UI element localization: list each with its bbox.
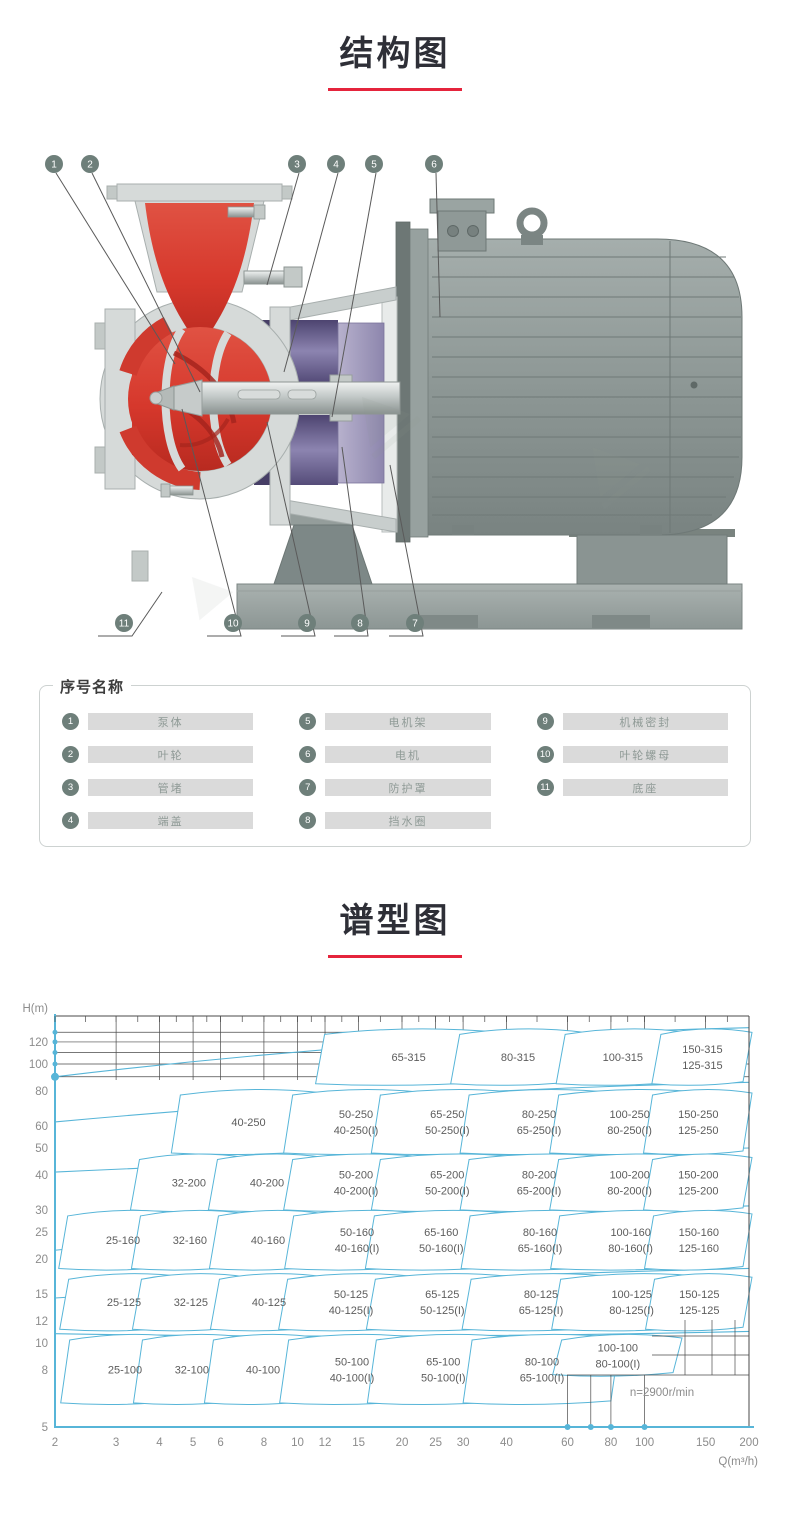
svg-text:50: 50 — [35, 1143, 48, 1155]
type-spectrum-chart: 65-31580-315100-315150-315125-31540-2505… — [0, 984, 790, 1489]
svg-text:4: 4 — [156, 1437, 163, 1449]
svg-text:20: 20 — [396, 1437, 409, 1449]
svg-text:150-160: 150-160 — [679, 1227, 719, 1239]
svg-text:60: 60 — [35, 1121, 48, 1133]
svg-text:40-125: 40-125 — [252, 1297, 286, 1309]
parts-legend-panel: 序号名称 1泵体2叶轮3管堵4端盖5电机架6电机7防护罩8挡水圈9机械密封10叶… — [39, 685, 751, 847]
svg-text:65-250: 65-250 — [430, 1109, 464, 1121]
svg-text:100-100: 100-100 — [598, 1342, 638, 1354]
pump-region-150-250 — [644, 1089, 752, 1154]
svg-text:40-160: 40-160 — [251, 1235, 285, 1247]
svg-text:25-100: 25-100 — [108, 1364, 142, 1376]
svg-text:100: 100 — [635, 1437, 654, 1449]
svg-text:Q(m³/h): Q(m³/h) — [718, 1456, 758, 1468]
svg-text:50-160: 50-160 — [340, 1227, 374, 1239]
part-number-badge: 6 — [299, 746, 316, 763]
svg-text:100: 100 — [29, 1059, 48, 1071]
svg-text:15: 15 — [35, 1289, 48, 1301]
svg-text:32-160: 32-160 — [173, 1235, 207, 1247]
svg-text:125-250: 125-250 — [678, 1125, 718, 1137]
svg-text:32-125: 32-125 — [174, 1297, 208, 1309]
part-number-badge: 2 — [62, 746, 79, 763]
svg-text:200: 200 — [739, 1437, 758, 1449]
svg-text:150-125: 150-125 — [679, 1289, 719, 1301]
svg-text:50-200: 50-200 — [339, 1170, 373, 1182]
svg-text:80-160: 80-160 — [523, 1227, 557, 1239]
svg-text:80-125: 80-125 — [524, 1289, 558, 1301]
svg-text:H(m): H(m) — [22, 1003, 48, 1015]
pump-region-150-315 — [652, 1029, 752, 1085]
part-name-label: 防护罩 — [325, 779, 490, 796]
callout-number: 11 — [119, 619, 130, 630]
part-number-badge: 7 — [299, 779, 316, 796]
part-number-badge: 11 — [537, 779, 554, 796]
svg-text:120: 120 — [29, 1037, 48, 1049]
part-name-label: 电机架 — [325, 713, 490, 730]
svg-text:32-200: 32-200 — [172, 1178, 206, 1190]
part-item-8: 8挡水圈 — [299, 812, 490, 829]
part-name-label: 管堵 — [88, 779, 253, 796]
svg-text:65-200(I): 65-200(I) — [517, 1186, 562, 1198]
pump-region-150-160 — [645, 1210, 752, 1270]
svg-text:25-125: 25-125 — [107, 1297, 141, 1309]
svg-text:10: 10 — [291, 1437, 304, 1449]
callout-number: 7 — [412, 619, 418, 630]
svg-text:25-160: 25-160 — [106, 1235, 140, 1247]
svg-text:12: 12 — [35, 1316, 48, 1328]
svg-text:150: 150 — [696, 1437, 715, 1449]
svg-text:n=2900r/min: n=2900r/min — [630, 1387, 694, 1399]
part-item-9: 9机械密封 — [537, 713, 728, 730]
svg-text:50-200(I): 50-200(I) — [425, 1186, 470, 1198]
svg-text:100-200: 100-200 — [609, 1170, 649, 1182]
callout-number: 4 — [333, 160, 339, 171]
svg-text:100-315: 100-315 — [603, 1052, 643, 1064]
part-name-label: 泵体 — [88, 713, 253, 730]
part-item-1: 1泵体 — [62, 713, 253, 730]
svg-text:60: 60 — [561, 1437, 574, 1449]
svg-text:40: 40 — [35, 1170, 48, 1182]
svg-text:30: 30 — [35, 1205, 48, 1217]
svg-text:5: 5 — [42, 1422, 48, 1434]
svg-text:10: 10 — [35, 1338, 48, 1350]
part-name-label: 底座 — [563, 779, 728, 796]
svg-text:2: 2 — [52, 1437, 58, 1449]
part-name-label: 叶轮 — [88, 746, 253, 763]
svg-text:50-250: 50-250 — [339, 1109, 373, 1121]
svg-text:125-200: 125-200 — [678, 1186, 718, 1198]
svg-text:80-160(I): 80-160(I) — [608, 1243, 653, 1255]
motor-flange — [396, 222, 428, 542]
part-name-label: 叶轮螺母 — [563, 746, 728, 763]
svg-text:15: 15 — [352, 1437, 365, 1449]
part-name-label: 电机 — [325, 746, 490, 763]
svg-text:50-125(I): 50-125(I) — [420, 1305, 465, 1317]
part-name-label: 机械密封 — [563, 713, 728, 730]
callout-number: 1 — [51, 160, 57, 171]
part-item-3: 3管堵 — [62, 779, 253, 796]
pump-cross-section: 1234561110987 — [32, 147, 758, 659]
svg-text:125-125: 125-125 — [679, 1305, 719, 1317]
svg-text:80-315: 80-315 — [501, 1052, 535, 1064]
svg-text:80: 80 — [605, 1437, 618, 1449]
chart-speed-annotation: n=2900r/min — [630, 1387, 694, 1399]
svg-text:80-125(I): 80-125(I) — [609, 1305, 654, 1317]
svg-text:65-200: 65-200 — [430, 1170, 464, 1182]
part-number-badge: 3 — [62, 779, 79, 796]
part-item-2: 2叶轮 — [62, 746, 253, 763]
callout-number: 10 — [227, 619, 239, 630]
structure-title: 结构图 — [0, 26, 790, 75]
svg-text:40-100(I): 40-100(I) — [330, 1372, 375, 1384]
svg-text:32-100: 32-100 — [175, 1364, 209, 1376]
svg-text:150-315: 150-315 — [682, 1044, 722, 1056]
callout-3: 3 — [267, 155, 306, 285]
svg-text:80-250: 80-250 — [522, 1109, 556, 1121]
motor-body — [427, 239, 742, 535]
svg-text:50-125: 50-125 — [334, 1289, 368, 1301]
spectrum-section-header: 谱型图 — [0, 893, 790, 958]
structure-section-header: 结构图 — [0, 0, 790, 91]
svg-text:40-200(I): 40-200(I) — [334, 1186, 379, 1198]
svg-text:40: 40 — [500, 1437, 513, 1449]
svg-text:5: 5 — [190, 1437, 196, 1449]
part-number-badge: 4 — [62, 812, 79, 829]
svg-text:80-200(I): 80-200(I) — [607, 1186, 652, 1198]
svg-text:80: 80 — [35, 1086, 48, 1098]
part-number-badge: 1 — [62, 713, 79, 730]
part-item-10: 10叶轮螺母 — [537, 746, 728, 763]
svg-text:65-100(I): 65-100(I) — [520, 1372, 565, 1384]
part-number-badge: 5 — [299, 713, 316, 730]
svg-text:150-200: 150-200 — [678, 1170, 718, 1182]
part-item-11: 11底座 — [537, 779, 728, 796]
callout-number: 5 — [371, 160, 377, 171]
svg-text:50-160(I): 50-160(I) — [419, 1243, 464, 1255]
callout-11: 11 — [98, 592, 162, 636]
chart-top-ticks — [55, 1016, 749, 1022]
svg-text:30: 30 — [457, 1437, 470, 1449]
svg-text:12: 12 — [319, 1437, 332, 1449]
svg-text:65-160: 65-160 — [424, 1227, 458, 1239]
pump-region-150-200 — [644, 1154, 752, 1212]
part-item-7: 7防护罩 — [299, 779, 490, 796]
svg-text:150-250: 150-250 — [678, 1109, 718, 1121]
structure-title-underline — [328, 88, 462, 91]
svg-text:6: 6 — [217, 1437, 223, 1449]
svg-text:40-200: 40-200 — [250, 1178, 284, 1190]
pump-region-150-125 — [646, 1274, 752, 1331]
svg-text:40-250(I): 40-250(I) — [334, 1125, 379, 1137]
svg-text:50-100(I): 50-100(I) — [421, 1372, 466, 1384]
motor-foot — [569, 529, 735, 584]
svg-text:65-160(I): 65-160(I) — [518, 1243, 563, 1255]
svg-text:65-250(I): 65-250(I) — [517, 1125, 562, 1137]
callout-number: 9 — [304, 619, 310, 630]
svg-text:3: 3 — [113, 1437, 119, 1449]
svg-text:50-250(I): 50-250(I) — [425, 1125, 470, 1137]
part-item-5: 5电机架 — [299, 713, 490, 730]
part-name-label: 挡水圈 — [325, 812, 490, 829]
svg-text:65-100: 65-100 — [426, 1356, 460, 1368]
part-number-badge: 9 — [537, 713, 554, 730]
callout-number: 2 — [87, 160, 93, 171]
svg-text:25: 25 — [35, 1227, 48, 1239]
svg-text:40-160(I): 40-160(I) — [335, 1243, 380, 1255]
spectrum-title-underline — [328, 955, 462, 958]
part-item-6: 6电机 — [299, 746, 490, 763]
svg-text:20: 20 — [35, 1254, 48, 1266]
svg-text:65-125(I): 65-125(I) — [519, 1305, 564, 1317]
svg-text:40-250: 40-250 — [231, 1117, 265, 1129]
svg-text:80-250(I): 80-250(I) — [607, 1125, 652, 1137]
parts-grid: 1泵体2叶轮3管堵4端盖5电机架6电机7防护罩8挡水圈9机械密封10叶轮螺母11… — [62, 713, 728, 829]
svg-text:125-315: 125-315 — [682, 1060, 722, 1072]
lifting-eye — [520, 211, 544, 245]
part-item-4: 4端盖 — [62, 812, 253, 829]
svg-text:40-125(I): 40-125(I) — [329, 1305, 374, 1317]
svg-text:8: 8 — [42, 1365, 48, 1377]
svg-text:65-315: 65-315 — [392, 1052, 426, 1064]
svg-text:50-100: 50-100 — [335, 1356, 369, 1368]
svg-text:8: 8 — [261, 1437, 267, 1449]
part-name-label: 端盖 — [88, 812, 253, 829]
motor-terminal-box — [430, 199, 494, 251]
parts-panel-title: 序号名称 — [53, 676, 131, 697]
svg-text:80-200: 80-200 — [522, 1170, 556, 1182]
svg-text:40-100: 40-100 — [246, 1364, 280, 1376]
callout-number: 8 — [357, 619, 363, 630]
svg-text:80-100: 80-100 — [525, 1356, 559, 1368]
svg-text:80-100(I): 80-100(I) — [596, 1358, 641, 1370]
svg-text:125-160: 125-160 — [679, 1243, 719, 1255]
part-number-badge: 10 — [537, 746, 554, 763]
spectrum-title: 谱型图 — [0, 893, 790, 942]
callout-number: 3 — [294, 160, 300, 171]
pump-structure-diagram: 1234561110987 — [32, 147, 758, 659]
callout-number: 6 — [431, 160, 437, 171]
svg-text:100-125: 100-125 — [611, 1289, 651, 1301]
svg-text:100-250: 100-250 — [609, 1109, 649, 1121]
svg-text:65-125: 65-125 — [425, 1289, 459, 1301]
svg-text:100-160: 100-160 — [610, 1227, 650, 1239]
part-number-badge: 8 — [299, 812, 316, 829]
svg-text:25: 25 — [429, 1437, 442, 1449]
